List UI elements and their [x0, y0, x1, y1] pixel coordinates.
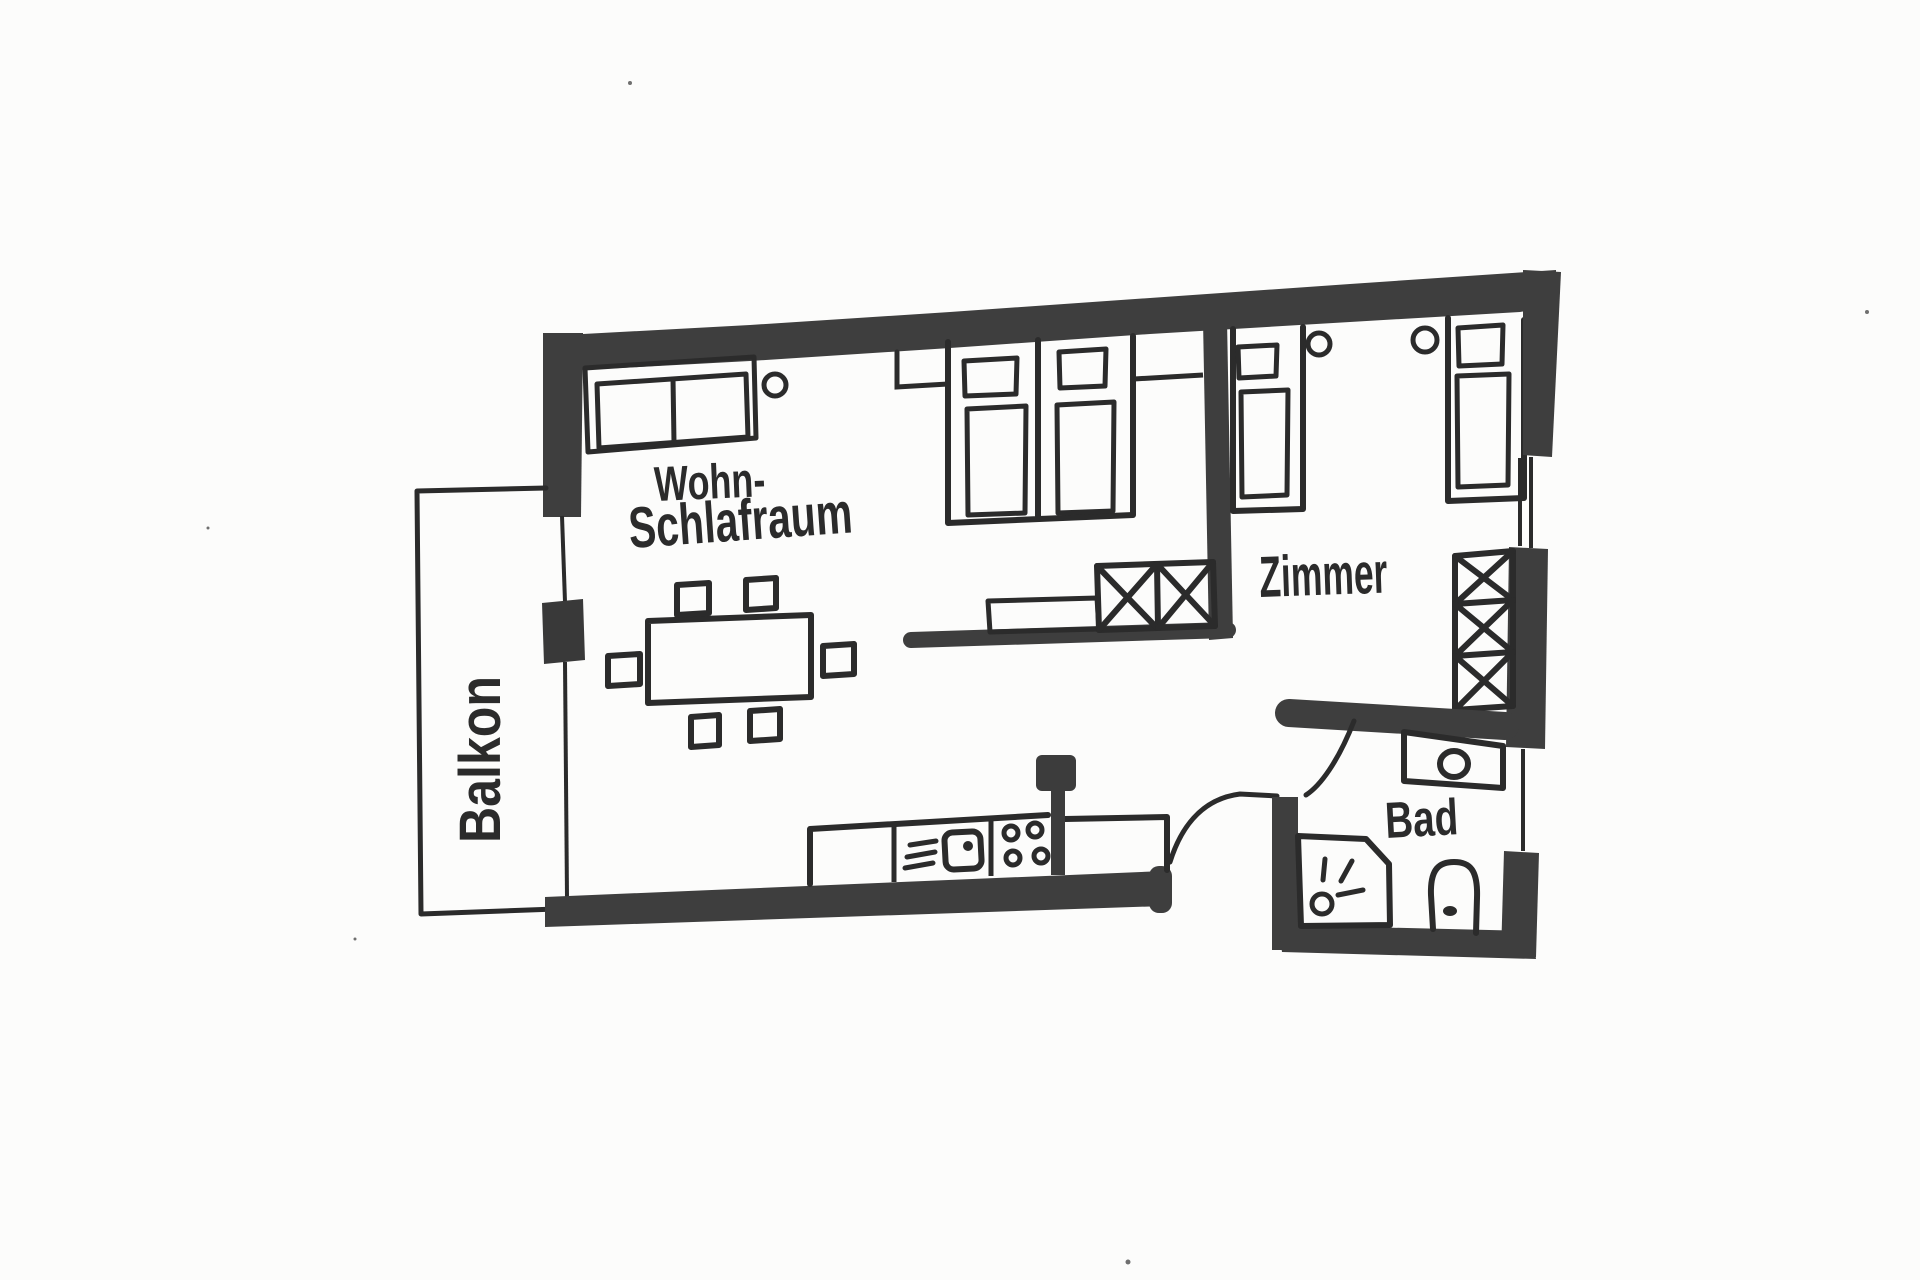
svg-text:Balkon: Balkon [448, 676, 513, 843]
svg-text:Zimmer: Zimmer [1258, 541, 1388, 610]
svg-text:Bad: Bad [1384, 788, 1460, 849]
